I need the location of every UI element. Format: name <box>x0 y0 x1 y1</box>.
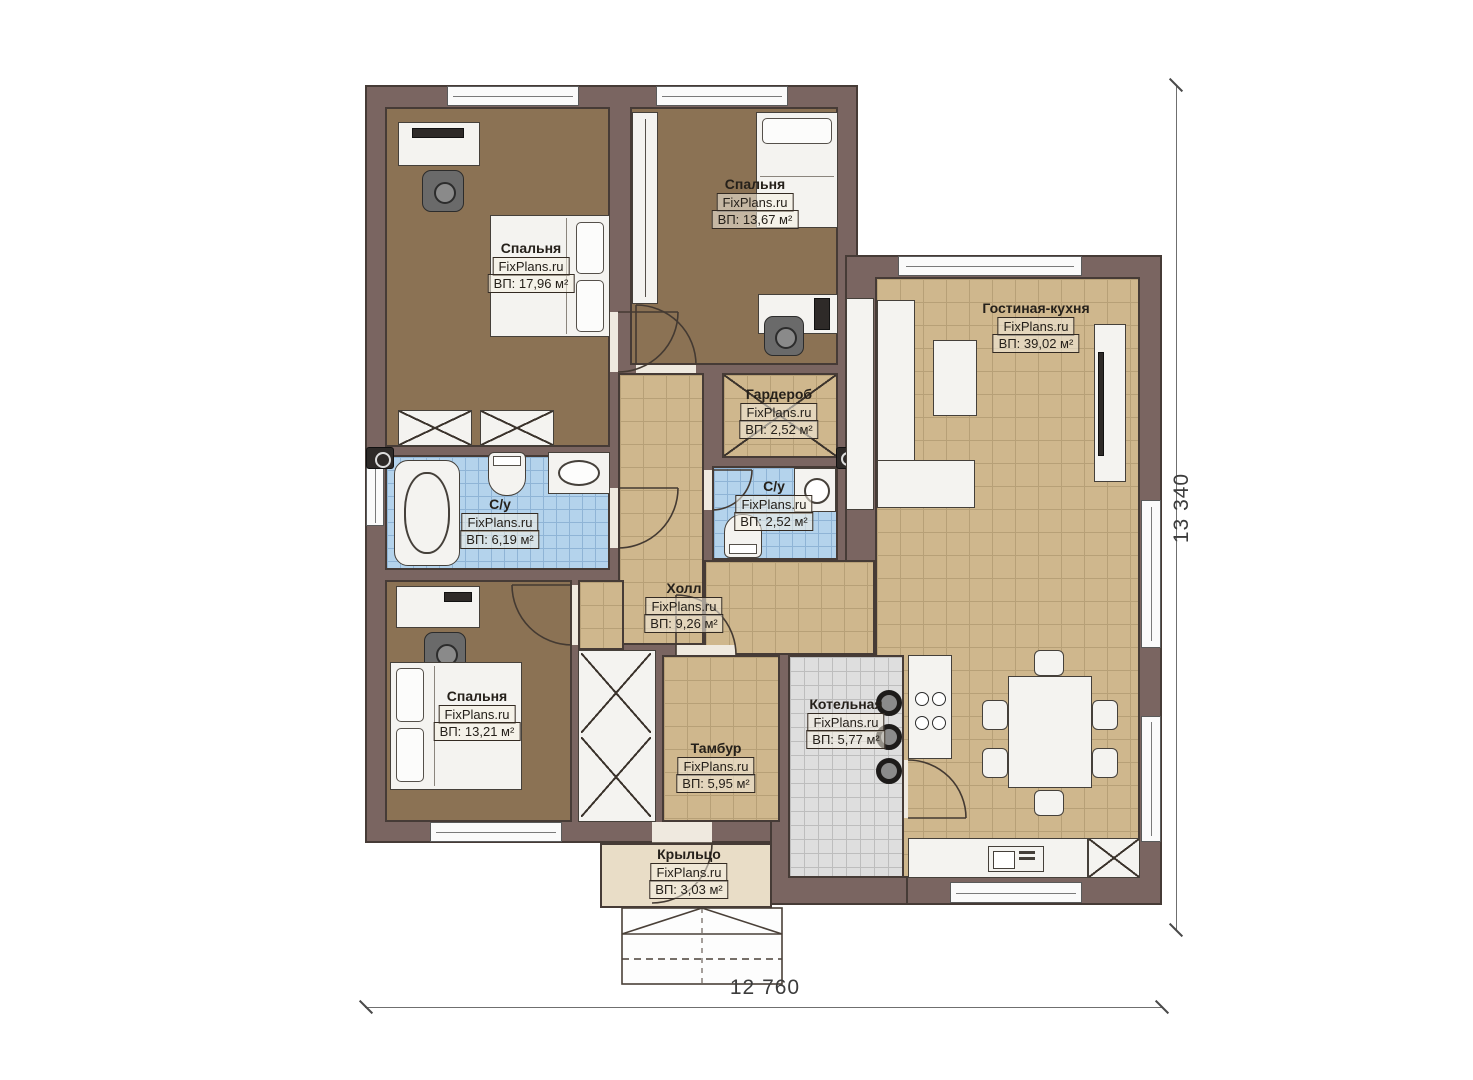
label-porch: Крыльцо FixPlans.ru ВП: 3,03 м² <box>649 846 728 899</box>
dining-chair <box>1034 650 1064 676</box>
door-opening <box>572 585 578 645</box>
pillow <box>396 728 424 782</box>
toilet <box>488 452 526 496</box>
window <box>1141 716 1161 842</box>
kitchen-tall-unit <box>846 298 874 510</box>
kitchen-sink <box>988 846 1044 872</box>
watermark: FixPlans.ru <box>740 403 817 422</box>
label-bedroom-1: Спальня FixPlans.ru ВП: 17,96 м² <box>488 240 575 293</box>
door-opening <box>610 488 618 548</box>
sofa-chaise <box>877 460 975 508</box>
pillow <box>762 118 832 144</box>
office-chair <box>422 170 464 212</box>
room-area: ВП: 17,96 м² <box>488 274 575 293</box>
watermark: FixPlans.ru <box>650 863 727 882</box>
watermark: FixPlans.ru <box>677 757 754 776</box>
door-opening <box>636 365 696 373</box>
label-living-kitchen: Гостиная-кухня FixPlans.ru ВП: 39,02 м² <box>982 300 1089 353</box>
watermark: FixPlans.ru <box>461 513 538 532</box>
dining-chair <box>982 700 1008 730</box>
watermark: FixPlans.ru <box>492 257 569 276</box>
room-area: ВП: 3,03 м² <box>649 880 728 899</box>
burner <box>932 716 946 730</box>
room-name: С/у <box>460 496 539 512</box>
dimension-bottom-line <box>365 1007 1162 1008</box>
closet-door-x <box>581 653 651 733</box>
vent-fixture <box>366 447 394 469</box>
label-boiler: Котельная FixPlans.ru ВП: 5,77 м² <box>806 696 885 749</box>
door-opening <box>676 645 736 655</box>
burner <box>932 692 946 706</box>
room-area: ВП: 2,52 м² <box>739 420 818 439</box>
closet <box>398 410 472 446</box>
room-name: Котельная <box>806 696 885 712</box>
floor-plan-page: Спальня FixPlans.ru ВП: 17,96 м² Спальня… <box>0 0 1473 1080</box>
coffee-table <box>933 340 977 416</box>
monitor <box>814 298 830 330</box>
room-area: ВП: 39,02 м² <box>993 334 1080 353</box>
wardrobe-cabinet <box>632 112 658 304</box>
tv-screen <box>1098 352 1104 456</box>
office-chair <box>764 316 804 356</box>
dining-chair <box>1092 700 1118 730</box>
dimension-bottom-value: 12 760 <box>700 976 830 1000</box>
room-area: ВП: 6,19 м² <box>460 530 539 549</box>
window <box>898 256 1082 276</box>
closet-door-x <box>581 737 651 817</box>
room-name: Крыльцо <box>649 846 728 862</box>
dining-table <box>1008 676 1092 788</box>
window <box>1141 500 1161 648</box>
room-area: ВП: 2,52 м² <box>734 512 813 531</box>
dining-chair <box>1034 790 1064 816</box>
window-mullion <box>1151 507 1152 641</box>
label-bedroom-2: Спальня FixPlans.ru ВП: 13,67 м² <box>712 176 799 229</box>
monitor <box>444 592 472 602</box>
sink-basin <box>558 460 600 486</box>
room-area: ВП: 5,95 м² <box>676 774 755 793</box>
window-mullion <box>906 266 1073 267</box>
pillow <box>396 668 424 722</box>
window-mullion <box>662 96 782 97</box>
burner <box>915 716 929 730</box>
watermark: FixPlans.ru <box>997 317 1074 336</box>
watermark: FixPlans.ru <box>807 713 884 732</box>
window-mullion <box>453 96 573 97</box>
bathtub-basin <box>404 472 450 554</box>
label-hall: Холл FixPlans.ru ВП: 9,26 м² <box>644 580 723 633</box>
room-name: Тамбур <box>676 740 755 756</box>
closet <box>480 410 554 446</box>
label-wardrobe: Гардероб FixPlans.ru ВП: 2,52 м² <box>739 386 818 439</box>
door-opening <box>652 822 712 843</box>
pillow <box>576 222 604 274</box>
dining-chair <box>982 748 1008 778</box>
window <box>430 822 562 842</box>
room-area: ВП: 5,77 м² <box>806 730 885 749</box>
porch-steps <box>622 908 782 984</box>
window <box>950 882 1082 903</box>
label-bathroom-big: С/у FixPlans.ru ВП: 6,19 м² <box>460 496 539 549</box>
pillow <box>576 280 604 332</box>
room-name: С/у <box>734 478 813 494</box>
door-opening <box>610 312 618 372</box>
room-name: Спальня <box>712 176 799 192</box>
chair-seat <box>434 182 456 204</box>
room-name: Гардероб <box>739 386 818 402</box>
dining-chair <box>1092 748 1118 778</box>
monitor <box>412 128 464 138</box>
window-mullion <box>1151 722 1152 836</box>
room-hall-floor-horizontal <box>704 560 875 655</box>
window-mullion <box>375 469 376 522</box>
watermark: FixPlans.ru <box>645 597 722 616</box>
room-name: Гостиная-кухня <box>982 300 1089 316</box>
chair-seat <box>775 327 797 349</box>
window <box>656 86 788 106</box>
stove <box>913 688 949 740</box>
room-area: ВП: 13,67 м² <box>712 210 799 229</box>
watermark: FixPlans.ru <box>438 705 515 724</box>
watermark: FixPlans.ru <box>716 193 793 212</box>
label-bathroom-small: С/у FixPlans.ru ВП: 2,52 м² <box>734 478 813 531</box>
corner-cabinet <box>1088 838 1140 878</box>
burner <box>915 692 929 706</box>
room-hall-floor-patch <box>578 580 624 650</box>
room-area: ВП: 9,26 м² <box>644 614 723 633</box>
room-tambur-floor <box>662 655 780 822</box>
window <box>366 466 384 526</box>
room-area: ВП: 13,21 м² <box>434 722 521 741</box>
window <box>447 86 579 106</box>
dimension-right-value: 13 340 <box>1170 468 1194 548</box>
label-tambur: Тамбур FixPlans.ru ВП: 5,95 м² <box>676 740 755 793</box>
door-opening <box>904 760 908 818</box>
room-name: Спальня <box>488 240 575 256</box>
label-bedroom-3: Спальня FixPlans.ru ВП: 13,21 м² <box>434 688 521 741</box>
door-opening <box>704 470 712 510</box>
window-mullion <box>956 893 1076 894</box>
watermark: FixPlans.ru <box>735 495 812 514</box>
room-name: Спальня <box>434 688 521 704</box>
window-mullion <box>436 832 556 833</box>
hall-closet <box>578 650 656 822</box>
room-name: Холл <box>644 580 723 596</box>
boiler-tank <box>876 758 902 784</box>
